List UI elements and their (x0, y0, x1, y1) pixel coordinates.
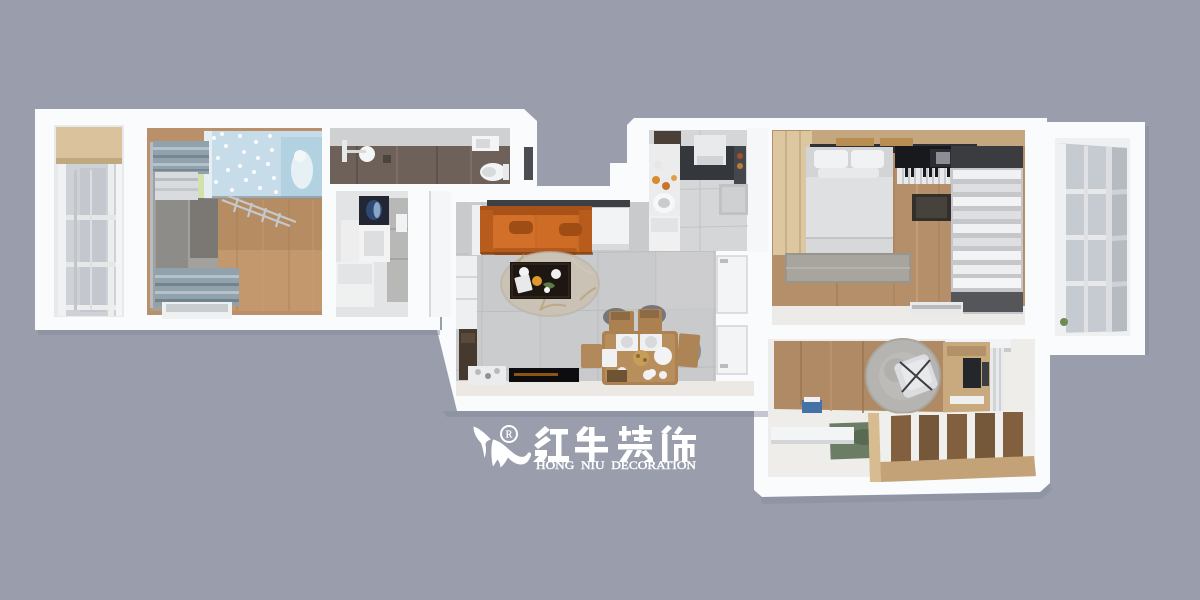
svg-text:R: R (506, 430, 513, 441)
svg-text:HONG NIU DECORATION: HONG NIU DECORATION (536, 460, 697, 472)
